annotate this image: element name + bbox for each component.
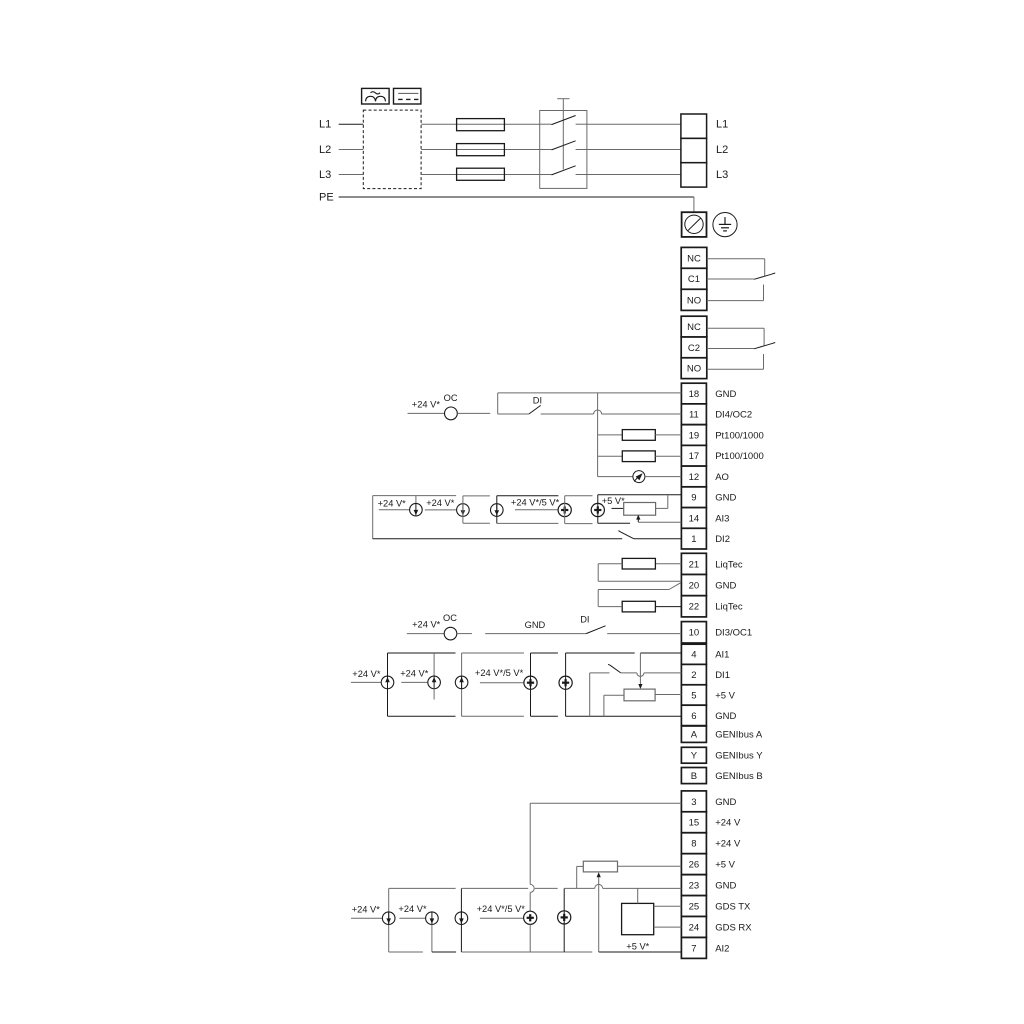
svg-text:DI2: DI2 [715,534,730,545]
svg-text:2: 2 [691,670,696,681]
svg-text:18: 18 [689,389,700,400]
svg-text:GDS TX: GDS TX [715,901,751,912]
svg-text:22: 22 [689,602,700,613]
svg-text:OC: OC [443,613,457,623]
svg-text:+5 V: +5 V [715,860,735,871]
svg-text:AO: AO [715,472,729,483]
svg-text:+24 V*: +24 V* [378,499,407,509]
svg-text:PE: PE [319,192,334,204]
svg-text:+24 V*: +24 V* [412,400,441,410]
svg-text:DI1: DI1 [715,670,730,681]
svg-text:10: 10 [689,628,700,639]
svg-text:DI4/OC2: DI4/OC2 [715,410,752,421]
svg-text:1: 1 [691,534,696,545]
svg-text:L3: L3 [319,169,331,181]
svg-text:17: 17 [689,451,700,462]
svg-text:+5 V*: +5 V* [626,941,649,951]
svg-text:7: 7 [691,943,696,954]
svg-text:+5 V: +5 V [715,690,735,701]
svg-text:6: 6 [691,711,696,722]
svg-text:GDS RX: GDS RX [715,922,752,933]
svg-text:+24 V*: +24 V* [352,669,381,679]
svg-text:20: 20 [689,581,700,592]
svg-text:+24 V*/5 V*: +24 V*/5 V* [475,668,524,678]
svg-text:DI: DI [580,615,589,625]
svg-text:L1: L1 [716,119,728,131]
svg-text:21: 21 [689,559,700,570]
svg-text:C2: C2 [688,343,700,354]
svg-text:+24 V*: +24 V* [400,668,429,678]
svg-text:GND: GND [715,711,736,722]
svg-text:+24 V: +24 V [715,818,741,829]
svg-text:DI: DI [533,395,542,405]
svg-text:DI3/OC1: DI3/OC1 [715,628,752,639]
svg-text:+24 V*: +24 V* [426,498,455,508]
svg-text:Pt100/1000: Pt100/1000 [715,430,764,441]
svg-text:L3: L3 [716,169,728,181]
svg-text:+24 V*: +24 V* [412,619,441,629]
svg-text:+24 V*: +24 V* [398,904,427,914]
svg-text:+24 V: +24 V [715,839,741,850]
svg-text:OC: OC [444,393,458,403]
svg-text:15: 15 [689,818,700,829]
svg-text:+24 V*/5 V*: +24 V*/5 V* [477,904,526,914]
svg-text:5: 5 [691,690,696,701]
svg-text:NC: NC [687,253,701,264]
svg-text:Pt100/1000: Pt100/1000 [715,451,764,462]
svg-text:19: 19 [689,430,700,441]
svg-text:GENIbus A: GENIbus A [715,730,763,741]
svg-text:L2: L2 [716,144,728,156]
svg-text:NC: NC [687,322,701,333]
svg-text:GND: GND [715,581,736,592]
svg-text:GND: GND [715,797,736,808]
svg-text:GND: GND [715,389,736,400]
svg-text:B: B [691,771,697,782]
svg-text:AI1: AI1 [715,650,729,661]
svg-text:AI3: AI3 [715,513,729,524]
svg-text:GENIbus B: GENIbus B [715,771,763,782]
svg-text:GND: GND [715,881,736,892]
svg-text:+24 V*: +24 V* [352,904,381,914]
svg-text:A: A [691,730,698,741]
svg-text:23: 23 [689,881,700,892]
svg-text:4: 4 [691,650,696,661]
svg-text:NO: NO [687,295,701,306]
svg-text:Y: Y [691,751,698,762]
svg-text:GND: GND [715,493,736,504]
svg-text:12: 12 [689,472,700,483]
svg-text:11: 11 [689,410,699,421]
svg-text:8: 8 [691,839,696,850]
svg-text:LiqTec: LiqTec [715,559,743,570]
svg-text:AI2: AI2 [715,943,729,954]
svg-text:C1: C1 [688,274,700,285]
svg-text:NO: NO [687,364,701,375]
svg-text:GENIbus Y: GENIbus Y [715,751,763,762]
svg-text:GND: GND [525,620,546,630]
svg-text:9: 9 [691,493,696,504]
svg-text:14: 14 [689,513,700,524]
svg-text:3: 3 [691,797,696,808]
svg-text:25: 25 [689,901,700,912]
svg-text:L2: L2 [319,144,331,156]
svg-text:24: 24 [689,922,700,933]
svg-text:L1: L1 [319,119,331,131]
svg-text:+24 V*/5 V*: +24 V*/5 V* [511,498,560,508]
svg-text:LiqTec: LiqTec [715,602,743,613]
svg-text:26: 26 [689,860,700,871]
svg-text:+5 V*: +5 V* [602,496,625,506]
